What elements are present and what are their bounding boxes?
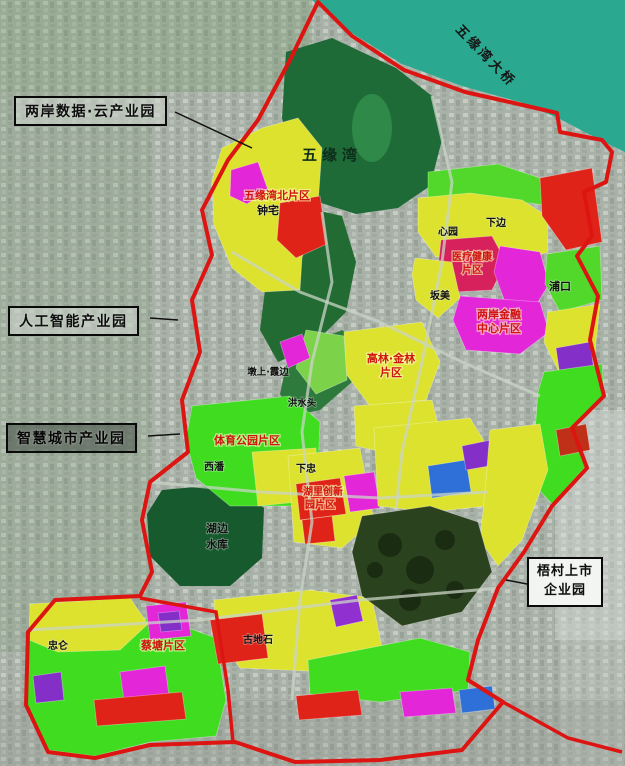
- map-label-10: 两岸金融: [477, 307, 521, 321]
- map-label-8: 浦口: [549, 279, 571, 293]
- map-label-23: 古地石: [243, 633, 273, 646]
- map-label-19: 湖里创新: [303, 485, 343, 498]
- sw-purple-block-2: [33, 672, 64, 703]
- map-label-20: 园片区: [305, 498, 335, 511]
- map-label-2: 五缘湾北片区: [244, 188, 310, 202]
- innovation-red-block-2: [302, 516, 335, 544]
- map-label-4: 心园: [438, 226, 458, 238]
- park-label-ai: 人工智能产业园: [8, 306, 139, 336]
- map-label-11: 中心片区: [477, 321, 521, 335]
- map-label-5: 下边: [486, 216, 507, 229]
- park-label-smart-city: 智慧城市产业园: [6, 423, 137, 453]
- bottom-magenta-block: [400, 688, 456, 717]
- park-label-cross-strait-data-cloud: 两岸数据·云产业园: [14, 96, 167, 126]
- map-label-12: 高林·金林: [367, 351, 415, 365]
- bottom-blue-block: [459, 686, 495, 713]
- map-label-16: 体育公园片区: [214, 433, 280, 447]
- map-label-18: 下忠: [296, 462, 316, 475]
- hill-spot-0: [378, 533, 402, 557]
- innovation-magenta-block: [344, 472, 380, 512]
- hill-spot-1: [406, 556, 434, 584]
- park-label-listed-enterprises-line1: 梧村上市: [537, 563, 593, 582]
- map-label-6: 医疗健康: [452, 250, 493, 263]
- map-label-9: 坂美: [430, 289, 451, 302]
- park-label-listed-enterprises-line2: 企业园: [537, 582, 593, 601]
- tint-1: [0, 92, 150, 652]
- map-label-7: 片区: [462, 263, 482, 276]
- planning-map: 五缘湾大桥五缘湾五缘湾北片区钟宅心园下边医疗健康片区浦口坂美两岸金融中心片区高林…: [0, 0, 625, 766]
- map-label-3: 钟宅: [257, 203, 279, 217]
- hill-spot-5: [367, 562, 383, 578]
- innovation-red-block-1: [296, 478, 346, 520]
- map-label-13: 片区: [380, 365, 402, 379]
- map-label-21: 湖边: [206, 521, 229, 535]
- map-label-14: 墩上·霞边: [247, 366, 289, 378]
- map-label-17: 西潘: [204, 460, 225, 473]
- map-label-25: 忠仑: [48, 639, 69, 652]
- tint-0: [0, 0, 312, 92]
- park-label-listed-enterprises: 梧村上市 企业园: [527, 557, 603, 607]
- map-label-15: 洪水头: [288, 397, 317, 409]
- map-label-22: 水库: [206, 537, 228, 551]
- map-label-1: 五缘湾: [302, 146, 362, 164]
- hill-spot-2: [435, 530, 455, 550]
- map-label-24: 蔡塘片区: [140, 638, 185, 652]
- hill-spot-3: [399, 589, 421, 611]
